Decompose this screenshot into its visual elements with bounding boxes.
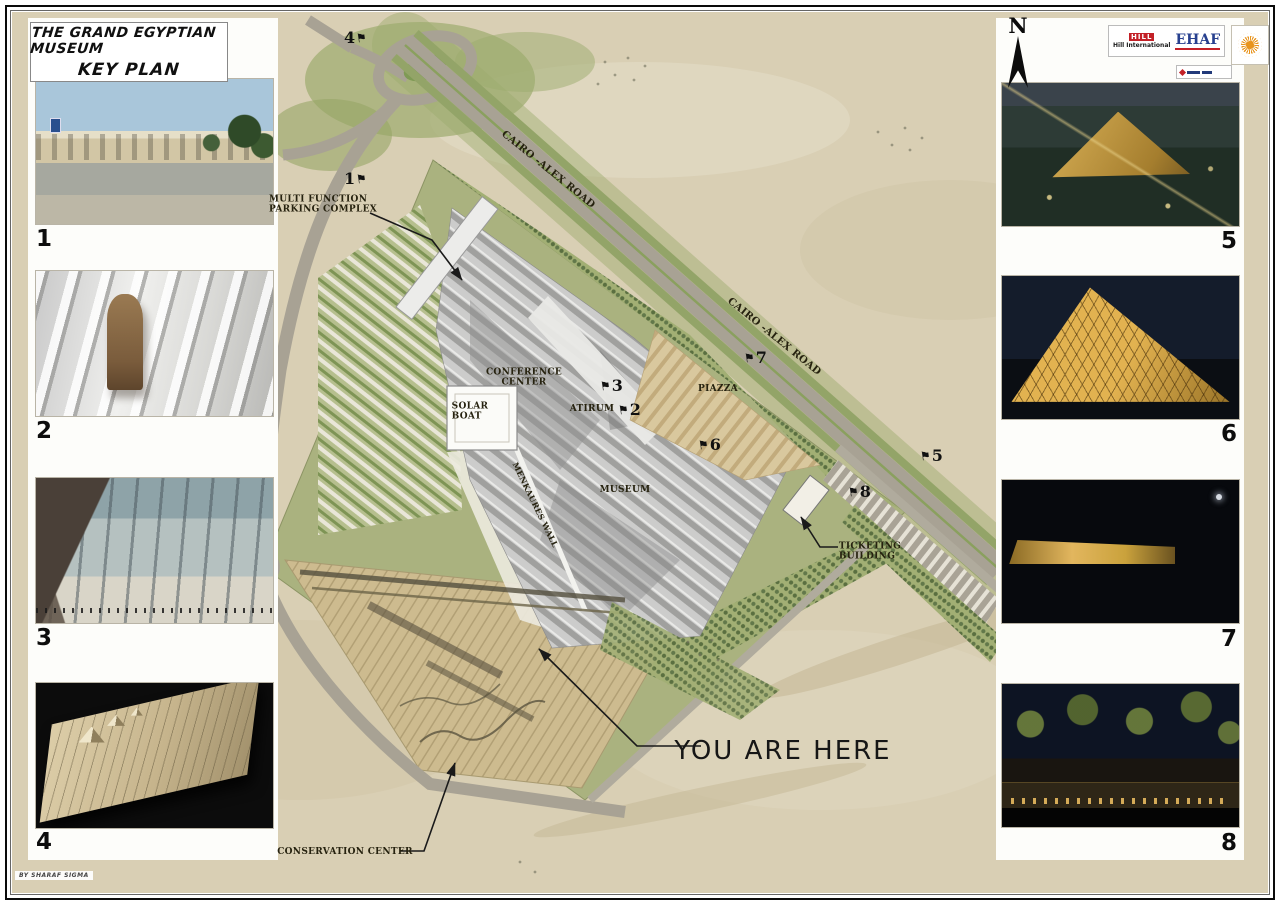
photo-2-thumbnail [35, 270, 274, 417]
hotel-building [1002, 782, 1239, 809]
hill-ehaf-logo: HILL Hill International EHAF [1108, 25, 1225, 57]
photo-5-thumbnail [1001, 82, 1240, 227]
photo-8-number: 8 [1001, 830, 1238, 856]
title-box: THE GRAND EGYPTIAN MUSEUM KEY PLAN [30, 22, 228, 82]
photo-6-number: 6 [1001, 421, 1238, 447]
poster-title: THE GRAND EGYPTIAN MUSEUM [29, 25, 228, 57]
photo-3-thumbnail [35, 477, 274, 624]
north-arrow: N [998, 16, 1038, 88]
sun-emblem-icon [1238, 33, 1262, 57]
partner-logo-text2 [1202, 71, 1212, 74]
credit-text: BY SHARAF SIGMA [15, 871, 93, 880]
key-plan-poster: 1 2 3 4 5 6 7 8 THE GRAND EGYPTIAN MUSEU… [0, 0, 1280, 905]
partner-logo-mark [1179, 68, 1186, 75]
statue-silhouette [107, 294, 143, 390]
logo-block: HILL Hill International EHAF [1108, 25, 1269, 65]
ehaf-logo: EHAF [1175, 33, 1220, 50]
photo-7-thumbnail [1001, 479, 1240, 624]
lit-windows [1011, 798, 1229, 804]
north-arrow-icon [1006, 36, 1030, 88]
partner-logo [1176, 65, 1232, 79]
people-row [36, 608, 273, 613]
photo-3-number: 3 [36, 625, 273, 651]
gem-emblem-box [1231, 25, 1269, 65]
poster-subtitle: KEY PLAN [77, 60, 181, 80]
photo-1-number: 1 [36, 226, 273, 252]
photo-4-thumbnail [35, 682, 274, 829]
partner-logo-text [1187, 71, 1200, 74]
photo-1-sign [50, 118, 61, 133]
hill-logo-icon: HILL [1129, 33, 1154, 41]
hill-logo-text: Hill International [1113, 42, 1170, 49]
photo-7-number: 7 [1001, 626, 1238, 652]
photo-4-number: 4 [36, 829, 273, 855]
photo-6-thumbnail [1001, 275, 1240, 420]
north-label: N [998, 16, 1038, 36]
you-are-here-label: YOU ARE HERE [674, 736, 891, 766]
photo-1-thumbnail [35, 78, 274, 225]
photo-8-thumbnail [1001, 683, 1240, 828]
photo-2-number: 2 [36, 418, 273, 444]
photo-5-number: 5 [1001, 228, 1238, 254]
